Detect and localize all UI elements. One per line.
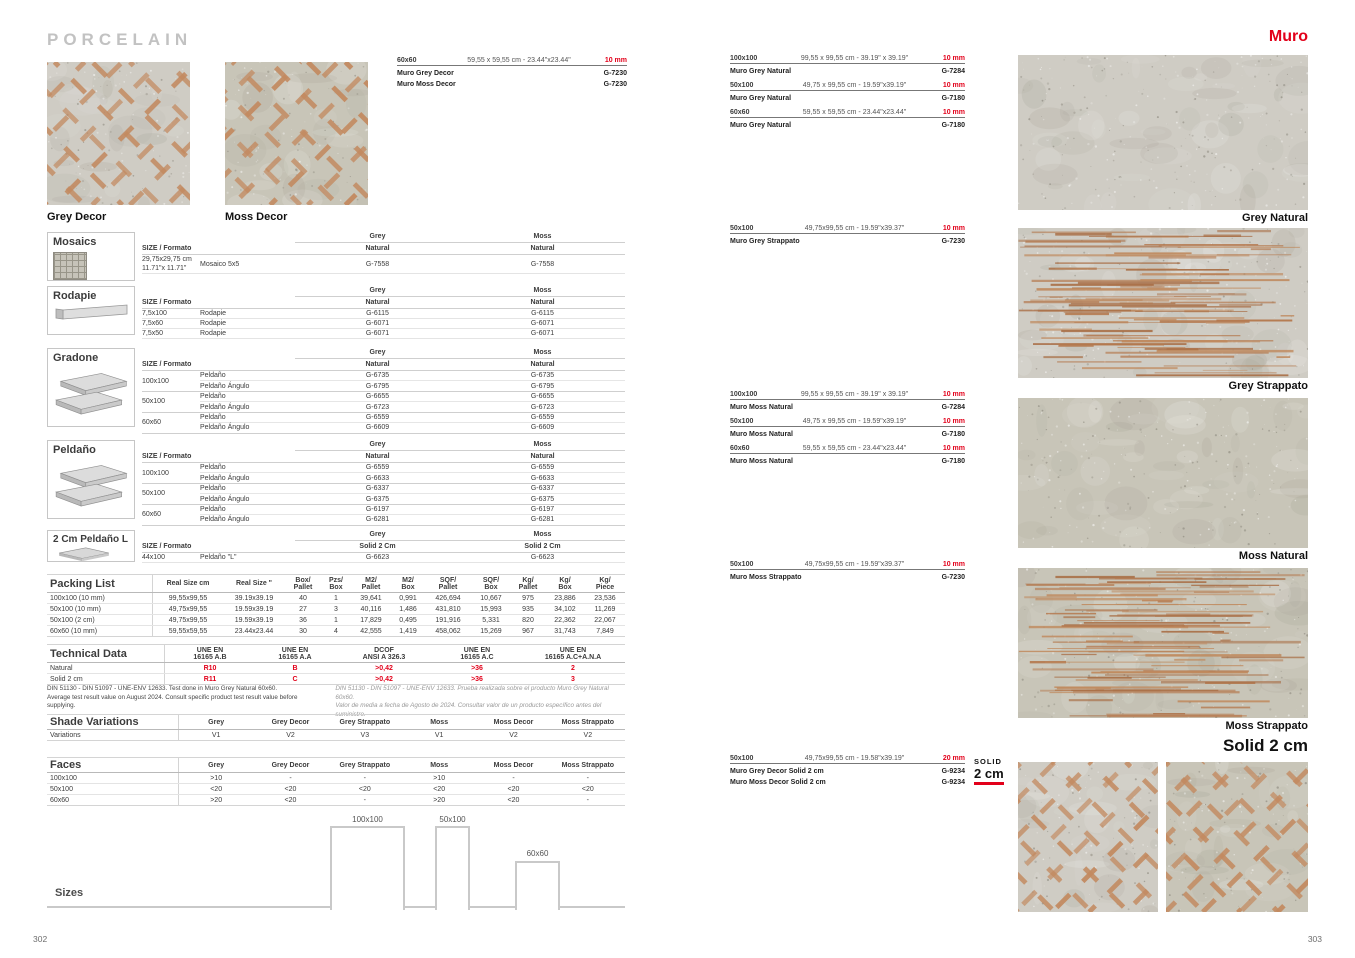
spec-entry: 60x60 59,55 x 59,55 cm - 23.44"x23.44" 1…: [730, 109, 965, 129]
grey-code: G-6655: [295, 392, 460, 401]
shade-variations-title: Shade Variations: [47, 715, 179, 729]
column-header: Moss: [402, 717, 476, 727]
size-header: SIZE / Formato: [142, 360, 295, 369]
moss-code: G-6375: [460, 495, 625, 504]
table-row: 60x60 >20<20->20<20-: [47, 795, 625, 805]
cell-value: 1: [321, 615, 351, 625]
cell-value: 34,102: [545, 604, 585, 614]
moss-finish-header: Solid 2 Cm: [460, 541, 625, 551]
technical-rows: Natural R10B>0,42>362 Solid 2 cm R11C>0,…: [47, 663, 625, 684]
row-size: 7,5x50: [142, 329, 200, 338]
grey-code: G-6623: [295, 553, 460, 562]
row-values: R11C>0,42>363: [165, 674, 625, 684]
grey-code: G-6337: [295, 484, 460, 493]
size-group: 50x100 Peldaño G-6337 G-6337 Peldaño Áng…: [142, 484, 625, 505]
page-number-left: 302: [33, 934, 47, 944]
cell-value: <20: [179, 784, 253, 794]
grey-decor-solid-tile-image: [1018, 762, 1158, 912]
cell-value: 36: [285, 615, 321, 625]
cell-value: 5,331: [471, 615, 511, 625]
rodapie-icon: [53, 303, 131, 327]
spec-product-row: Muro Moss Strappato G-7230: [730, 574, 965, 581]
rodapie-label-box: Rodapie: [47, 286, 135, 335]
grey-natural-caption: Grey Natural: [1018, 212, 1308, 224]
moss-column-header: Moss: [460, 530, 625, 541]
spec-dimensions: 99,55 x 99,55 cm - 39.19" x 39.19": [778, 391, 931, 398]
solid-badge-line1: SOLID: [974, 757, 1004, 766]
column-header: Pzs/ Box: [321, 575, 351, 592]
moss-natural-caption: Moss Natural: [1018, 550, 1308, 562]
moss-code: G-6633: [460, 474, 625, 483]
spec-entry: 50x100 49,75x99,55 cm - 19.58"x39.19" 20…: [730, 755, 965, 786]
cell-value: 967: [511, 626, 545, 636]
column-header: Kg/ Box: [545, 575, 585, 592]
spec-dimensions: 59,55 x 59,55 cm - 23.44"x23.44": [778, 445, 931, 452]
cell-value: 39.19x39.19: [223, 593, 285, 603]
table-row: 7,5x60 Rodapie G-6071 G-6071: [142, 319, 625, 329]
row-values: 49,75x99,5519.59x39.1936117,8290,495191,…: [153, 615, 625, 625]
row-size: 7,5x100: [142, 309, 200, 318]
faces-rows: 100x100 >10-->10-- 50x100 <20<20<20<20<2…: [47, 773, 625, 805]
size-group: 50x100 Peldaño G-6655 G-6655 Peldaño Áng…: [142, 392, 625, 413]
spec-group-grey-natural: 100x100 99,55 x 99,55 cm - 39.19" x 39.1…: [730, 55, 965, 136]
moss-code: G-6609: [460, 423, 625, 432]
peldano-title: Peldaño: [53, 443, 129, 457]
moss-column-header: Moss: [460, 232, 625, 243]
cell-value: >10: [402, 773, 476, 783]
grey-code: G-6375: [295, 495, 460, 504]
spec-dimensions: 59,55 x 59,55 cm - 23.44"x23.44": [778, 109, 931, 116]
peldano-l-rows: 44x100 Peldaño "L" G-6623 G-6623: [142, 553, 625, 563]
cell-value: 0,991: [391, 593, 425, 603]
tile-texture: [1018, 398, 1308, 548]
moss-code: G-6655: [460, 392, 625, 401]
spec-product-list: Muro Moss Strappato G-7230: [730, 574, 965, 581]
cell-value: 3: [321, 604, 351, 614]
grey-finish-header: Natural: [295, 297, 460, 307]
size-header: SIZE / Formato: [142, 244, 295, 253]
grey-column-header: Grey: [295, 286, 460, 297]
faces-columns: GreyGrey DecorGrey StrappatoMossMoss Dec…: [179, 758, 625, 772]
cell-value: V2: [253, 730, 327, 740]
spec-product-list: Muro Grey Decor Solid 2 cm G-9234 Muro M…: [730, 768, 965, 786]
spec-entry: 60x60 59,55 x 59,55 cm - 23.44"x23.44" 1…: [730, 445, 965, 465]
spec-header: 60x60 59,55 x 59,55 cm - 23.44"x23.44" 1…: [730, 445, 965, 454]
table-row: Peldaño G-6559 G-6559: [200, 463, 625, 473]
cell-value: 10,667: [471, 593, 511, 603]
spec-thickness: 10 mm: [931, 225, 965, 232]
cell-value: 975: [511, 593, 545, 603]
cell-value: 23,886: [545, 593, 585, 603]
page-title: PORCELAIN: [47, 30, 192, 50]
group-size: 50x100: [142, 392, 200, 412]
spec-entry: 100x100 99,55 x 99,55 cm - 39.19" x 39.1…: [730, 55, 965, 75]
row-product: Peldaño Ángulo: [200, 515, 295, 524]
table-row: 50x100 (2 cm) 49,75x99,5519.59x39.193611…: [47, 615, 625, 626]
grey-column-header: Grey: [295, 530, 460, 541]
product-code: G-7180: [942, 431, 965, 438]
product-name: Muro Moss Decor Solid 2 cm: [730, 779, 826, 786]
cell-value: V2: [551, 730, 625, 740]
shade-values: V1V2V3V1V2V2: [179, 730, 625, 740]
product-code: G-9234: [942, 768, 965, 775]
spec-product-row: Muro Moss Natural G-7180: [730, 431, 965, 438]
cell-value: 15,269: [471, 626, 511, 636]
cell-value: >10: [179, 773, 253, 783]
gradone-title: Gradone: [53, 351, 129, 365]
technical-headers: UNE EN 16165 A.BUNE EN 16165 A.ADCOF ANS…: [165, 645, 625, 662]
cell-value: R11: [165, 674, 255, 684]
peldano-label-box: Peldaño: [47, 440, 135, 519]
cell-value: 458,062: [425, 626, 471, 636]
group-items: Peldaño G-6337 G-6337 Peldaño Ángulo G-6…: [200, 484, 625, 504]
spec-thickness: 20 mm: [931, 755, 965, 762]
moss-column-header: Moss: [460, 348, 625, 359]
spec-group-moss-natural: 100x100 99,55 x 99,55 cm - 39.19" x 39.1…: [730, 391, 965, 472]
cell-value: 15,993: [471, 604, 511, 614]
cell-value: 1: [321, 593, 351, 603]
row-values: >10-->10--: [179, 773, 625, 783]
row-values: 59,55x59,5523.44x23.4430442,5551,419458,…: [153, 626, 625, 636]
catalog-spread: PORCELAIN Grey Decor Moss Decor 60x60 59…: [0, 0, 1355, 958]
product-name: Muro Moss Strappato: [730, 574, 802, 581]
row-product: Peldaño: [200, 505, 295, 514]
row-product: Rodapie: [200, 329, 295, 338]
spec-product-row: Muro Moss Decor Solid 2 cm G-9234: [730, 779, 965, 786]
cell-value: 2: [521, 663, 625, 673]
step-tiles-icon: [53, 459, 131, 511]
spec-group-grey-strappato: 50x100 49,75x99,55 cm - 19.59"x39.37" 10…: [730, 225, 965, 252]
grey-column-header: Grey: [295, 232, 460, 243]
spec-entry: 50x100 49,75 x 99,55 cm - 19.59"x39.19" …: [730, 418, 965, 438]
moss-finish-header: Natural: [460, 359, 625, 369]
cell-value: V1: [402, 730, 476, 740]
column-header: Real Size ": [223, 579, 285, 589]
spec-product-list: Muro Moss Natural G-7180: [730, 458, 965, 465]
size-header: SIZE / Formato: [142, 542, 295, 551]
spec-thickness: 10 mm: [931, 391, 965, 398]
spec-60x60-decor: 60x60 59,55 x 59,55 cm - 23.44"x23.44" 1…: [397, 57, 627, 95]
cell-value: R10: [165, 663, 255, 673]
cell-value: 1,419: [391, 626, 425, 636]
size-box-60x60: [515, 861, 560, 910]
spec-dimensions: 49,75x99,55 cm - 19.58"x39.19": [778, 755, 931, 762]
cell-value: 426,694: [425, 593, 471, 603]
table-row: 7,5x100 Rodapie G-6115 G-6115: [142, 309, 625, 319]
cell-value: 7,849: [585, 626, 625, 636]
size-header: SIZE / Formato: [142, 298, 295, 307]
table-header: SIZE / Formato GreyNatural MossNatural: [142, 286, 625, 309]
faces-header-row: Faces GreyGrey DecorGrey StrappatoMossMo…: [47, 758, 625, 773]
spec-size: 60x60: [730, 445, 778, 452]
sizes-title: Sizes: [55, 887, 83, 899]
group-items: Peldaño G-6197 G-6197 Peldaño Ángulo G-6…: [200, 505, 625, 525]
cell-value: 19.59x39.19: [223, 615, 285, 625]
row-values: 49,75x99,5519.59x39.1927340,1161,486431,…: [153, 604, 625, 614]
spec-product-row: Muro Grey Decor Solid 2 cm G-9234: [730, 768, 965, 775]
table-header: SIZE / Formato GreyNatural MossNatural: [142, 232, 625, 255]
column-header: Grey Strappato: [328, 760, 402, 770]
row-product: Rodapie: [200, 309, 295, 318]
row-product: Peldaño: [200, 371, 295, 380]
column-header: Moss Decor: [476, 717, 550, 727]
cell-value: C: [255, 674, 335, 684]
shade-columns: GreyGrey DecorGrey StrappatoMossMoss Dec…: [179, 715, 625, 729]
grey-code: G-6735: [295, 371, 460, 380]
product-name: Muro Grey Decor: [397, 70, 454, 77]
cell-value: >0,42: [335, 663, 433, 673]
spec-product-list: Muro Grey Strappato G-7230: [730, 238, 965, 245]
spec-product-row: Muro Moss Decor G-7230: [397, 81, 627, 88]
column-header: UNE EN 16165 A.A: [255, 645, 335, 662]
column-header: Grey Strappato: [328, 717, 402, 727]
solid-2cm-badge: SOLID 2 cm: [974, 757, 1004, 785]
packing-list-table: Packing List Real Size cmReal Size "Box/…: [47, 574, 625, 637]
moss-code: G-6197: [460, 505, 625, 514]
table-header: SIZE / Formato GreySolid 2 Cm MossSolid …: [142, 530, 625, 553]
column-header: M2/ Pallet: [351, 575, 391, 592]
row-product: Peldaño: [200, 484, 295, 493]
row-product: Peldaño: [200, 392, 295, 401]
cell-value: >20: [179, 795, 253, 805]
product-code: G-7284: [942, 68, 965, 75]
row-label: 60x60 (10 mm): [47, 626, 153, 636]
column-header: Kg/ Pallet: [511, 575, 545, 592]
table-row: Variations V1V2V3V1V2V2: [47, 730, 625, 740]
moss-code: G-6559: [460, 413, 625, 422]
grey-code: G-6723: [295, 403, 460, 412]
gradone-label-box: Gradone: [47, 348, 135, 427]
packing-rows: 100x100 (10 mm) 99,55x99,5539.19x39.1940…: [47, 593, 625, 636]
spec-product-row: Muro Grey Natural G-7180: [730, 122, 965, 129]
cell-value: >0,42: [335, 674, 433, 684]
mosaics-label-box: Mosaics: [47, 232, 135, 281]
tile-texture: [225, 62, 368, 205]
table-row: 100x100 >10-->10--: [47, 773, 625, 784]
spec-thickness: 10 mm: [931, 82, 965, 89]
shade-variations-table: Shade Variations GreyGrey DecorGrey Stra…: [47, 714, 625, 741]
cell-value: 17,829: [351, 615, 391, 625]
row-values: R10B>0,42>362: [165, 663, 625, 673]
cell-value: 59,55x59,55: [153, 626, 223, 636]
spec-entry: 50x100 49,75x99,55 cm - 19.59"x39.37" 10…: [730, 561, 965, 581]
column-header: Moss: [402, 760, 476, 770]
product-code: G-7180: [942, 122, 965, 129]
moss-decor-tile-image: [225, 62, 368, 205]
table-row: 50x100 (10 mm) 49,75x99,5519.59x39.19273…: [47, 604, 625, 615]
row-product: Peldaño Ángulo: [200, 423, 295, 432]
group-items: Peldaño G-6735 G-6735 Peldaño Ángulo G-6…: [200, 371, 625, 391]
packing-list-title: Packing List: [47, 575, 153, 592]
moss-code: G-6071: [460, 319, 625, 328]
solid-badge-line2: 2 cm: [974, 766, 1004, 785]
faces-title: Faces: [47, 758, 179, 772]
grey-finish-header: Natural: [295, 451, 460, 461]
row-label: Solid 2 cm: [47, 674, 165, 684]
mosaics-title: Mosaics: [53, 235, 129, 249]
group-size: 60x60: [142, 505, 200, 525]
cell-value: 39,641: [351, 593, 391, 603]
column-header: Kg/ Piece: [585, 575, 625, 592]
spec-product-list: Muro Grey Natural G-7180: [730, 122, 965, 129]
shade-header-row: Shade Variations GreyGrey DecorGrey Stra…: [47, 715, 625, 730]
row-product: Mosaico 5x5: [200, 260, 295, 269]
row-product: Peldaño Ángulo: [200, 403, 295, 412]
size-group: 100x100 Peldaño G-6559 G-6559 Peldaño Án…: [142, 463, 625, 484]
tile-texture: [1166, 762, 1308, 912]
spec-size: 60x60: [730, 109, 778, 116]
spec-dimensions: 49,75x99,55 cm - 19.59"x39.37": [778, 225, 931, 232]
grey-finish-header: Solid 2 Cm: [295, 541, 460, 551]
grey-strappato-image: [1018, 228, 1308, 378]
column-header: DCOF ANSI A 326.3: [335, 645, 433, 662]
spec-size: 50x100: [730, 418, 778, 425]
row-label: 50x100: [47, 784, 179, 794]
spec-product-row: Muro Grey Natural G-7180: [730, 95, 965, 102]
technical-data-table: Technical Data UNE EN 16165 A.BUNE EN 16…: [47, 644, 625, 685]
tile-texture: [1018, 228, 1308, 378]
table-row: Peldaño Ángulo G-6375 G-6375: [200, 494, 625, 504]
cell-value: 4: [321, 626, 351, 636]
size-label-100x100: 100x100: [330, 815, 405, 824]
row-product: Peldaño Ángulo: [200, 474, 295, 483]
cell-value: -: [253, 773, 327, 783]
cell-value: 40,116: [351, 604, 391, 614]
moss-finish-header: Natural: [460, 243, 625, 253]
spec-product-row: Muro Moss Natural G-7284: [730, 404, 965, 411]
table-row: Natural R10B>0,42>362: [47, 663, 625, 674]
moss-strappato-caption: Moss Strappato: [1018, 720, 1308, 732]
tile-texture: [1018, 762, 1158, 912]
group-items: Peldaño G-6559 G-6559 Peldaño Ángulo G-6…: [200, 413, 625, 433]
cell-value: -: [551, 773, 625, 783]
product-name: Muro Grey Natural: [730, 68, 791, 75]
moss-code: G-6337: [460, 484, 625, 493]
spec-size: 60x60: [397, 57, 445, 64]
technical-header-row: Technical Data UNE EN 16165 A.BUNE EN 16…: [47, 645, 625, 663]
peldano-l-table: 2 Cm Peldaño L SIZE / Formato GreySolid …: [47, 530, 625, 563]
spec-size: 50x100: [730, 755, 778, 762]
grey-code: G-6559: [295, 413, 460, 422]
cell-value: 935: [511, 604, 545, 614]
spec-header: 50x100 49,75 x 99,55 cm - 19.59"x39.19" …: [730, 82, 965, 91]
faces-table: Faces GreyGrey DecorGrey StrappatoMossMo…: [47, 757, 625, 806]
spec-product-row: Muro Grey Strappato G-7230: [730, 238, 965, 245]
cell-value: <20: [253, 795, 327, 805]
size-box-100x100: [330, 826, 405, 910]
product-name: Muro Moss Natural: [730, 458, 793, 465]
moss-natural-image: [1018, 398, 1308, 548]
column-header: Grey: [179, 717, 253, 727]
moss-finish-header: Natural: [460, 297, 625, 307]
spec-header: 50x100 49,75x99,55 cm - 19.58"x39.19" 20…: [730, 755, 965, 764]
product-code: G-7230: [604, 81, 627, 88]
cell-value: 49,75x99,55: [153, 604, 223, 614]
spec-header: 50x100 49,75x99,55 cm - 19.59"x39.37" 10…: [730, 561, 965, 570]
row-label: 100x100: [47, 773, 179, 783]
tile-texture: [1018, 55, 1308, 210]
grey-code: G-6559: [295, 463, 460, 472]
cell-value: 40: [285, 593, 321, 603]
product-name: Muro Grey Natural: [730, 95, 791, 102]
size-box-50x100: [435, 826, 470, 910]
spec-header: 50x100 49,75x99,55 cm - 19.59"x39.37" 10…: [730, 225, 965, 234]
size-group: 100x100 Peldaño G-6735 G-6735 Peldaño Án…: [142, 371, 625, 392]
step-tiles-icon: [53, 367, 131, 419]
cell-value: <20: [328, 784, 402, 794]
row-size: 44x100: [142, 553, 200, 562]
spec-thickness: 10 mm: [931, 561, 965, 568]
packing-header-row: Packing List Real Size cmReal Size "Box/…: [47, 575, 625, 593]
grey-decor-caption: Grey Decor: [47, 211, 106, 223]
product-code: G-9234: [942, 779, 965, 786]
spec-size: 100x100: [730, 391, 778, 398]
table-row: 50x100 <20<20<20<20<20<20: [47, 784, 625, 795]
spec-header: 100x100 99,55 x 99,55 cm - 39.19" x 39.1…: [730, 391, 965, 400]
cell-value: -: [328, 773, 402, 783]
spec-product-row: Muro Moss Natural G-7180: [730, 458, 965, 465]
spec-dimensions: 49,75 x 99,55 cm - 19.59"x39.19": [778, 82, 931, 89]
mosaic-icon: [53, 252, 87, 280]
cell-value: <20: [551, 784, 625, 794]
cell-value: 1,486: [391, 604, 425, 614]
cell-value: 23,536: [585, 593, 625, 603]
solid-2cm-heading: Solid 2 cm: [1018, 736, 1308, 756]
moss-code: G-6723: [460, 403, 625, 412]
spec-header: 100x100 99,55 x 99,55 cm - 39.19" x 39.1…: [730, 55, 965, 64]
cell-value: 31,743: [545, 626, 585, 636]
packing-headers: Real Size cmReal Size "Box/ PalletPzs/ B…: [153, 575, 625, 592]
product-name: Muro Grey Natural: [730, 122, 791, 129]
spec-thickness: 10 mm: [931, 418, 965, 425]
moss-decor-solid-tile-image: [1166, 762, 1308, 912]
moss-finish-header: Natural: [460, 451, 625, 461]
cell-value: 19.59x39.19: [223, 604, 285, 614]
table-row: 29,75x29,75 cm 11.71"x 11.71" Mosaico 5x…: [142, 255, 625, 274]
column-header: Grey Decor: [253, 717, 327, 727]
grey-code: G-6197: [295, 505, 460, 514]
grey-code: G-6633: [295, 474, 460, 483]
moss-code: G-6115: [460, 309, 625, 318]
spec-product-row: Muro Grey Decor G-7230: [397, 70, 627, 77]
row-values: <20<20<20<20<20<20: [179, 784, 625, 794]
table-row: 7,5x50 Rodapie G-6071 G-6071: [142, 329, 625, 339]
table-header: SIZE / Formato GreyNatural MossNatural: [142, 440, 625, 463]
cell-value: <20: [253, 784, 327, 794]
column-header: Box/ Pallet: [285, 575, 321, 592]
moss-column-header: Moss: [460, 286, 625, 297]
row-product: Peldaño Ángulo: [200, 382, 295, 391]
rodapie-table: Rodapie SIZE / Formato GreyNatural MossN…: [47, 286, 625, 336]
table-row: Peldaño Ángulo G-6795 G-6795: [200, 381, 625, 391]
product-code: G-7230: [942, 574, 965, 581]
moss-code: G-6623: [460, 553, 625, 562]
mosaics-rows: 29,75x29,75 cm 11.71"x 11.71" Mosaico 5x…: [142, 255, 625, 274]
product-code: G-7230: [604, 70, 627, 77]
spec-header: 60x60 59,55 x 59,55 cm - 23.44"x23.44" 1…: [397, 57, 627, 66]
cell-value: -: [551, 795, 625, 805]
peldano-l-label-box: 2 Cm Peldaño L: [47, 530, 135, 562]
rodapie-rows: 7,5x100 Rodapie G-6115 G-6115 7,5x60 Rod…: [142, 309, 625, 339]
spec-dimensions: 49,75 x 99,55 cm - 19.59"x39.19": [778, 418, 931, 425]
moss-decor-caption: Moss Decor: [225, 211, 287, 223]
table-row: Peldaño Ángulo G-6723 G-6723: [200, 402, 625, 412]
table-row: Peldaño G-6559 G-6559: [200, 413, 625, 423]
table-row: 100x100 (10 mm) 99,55x99,5539.19x39.1940…: [47, 593, 625, 604]
spec-product-list: Muro Grey Natural G-7180: [730, 95, 965, 102]
table-row: Peldaño Ángulo G-6609 G-6609: [200, 423, 625, 433]
grey-natural-image: [1018, 55, 1308, 210]
